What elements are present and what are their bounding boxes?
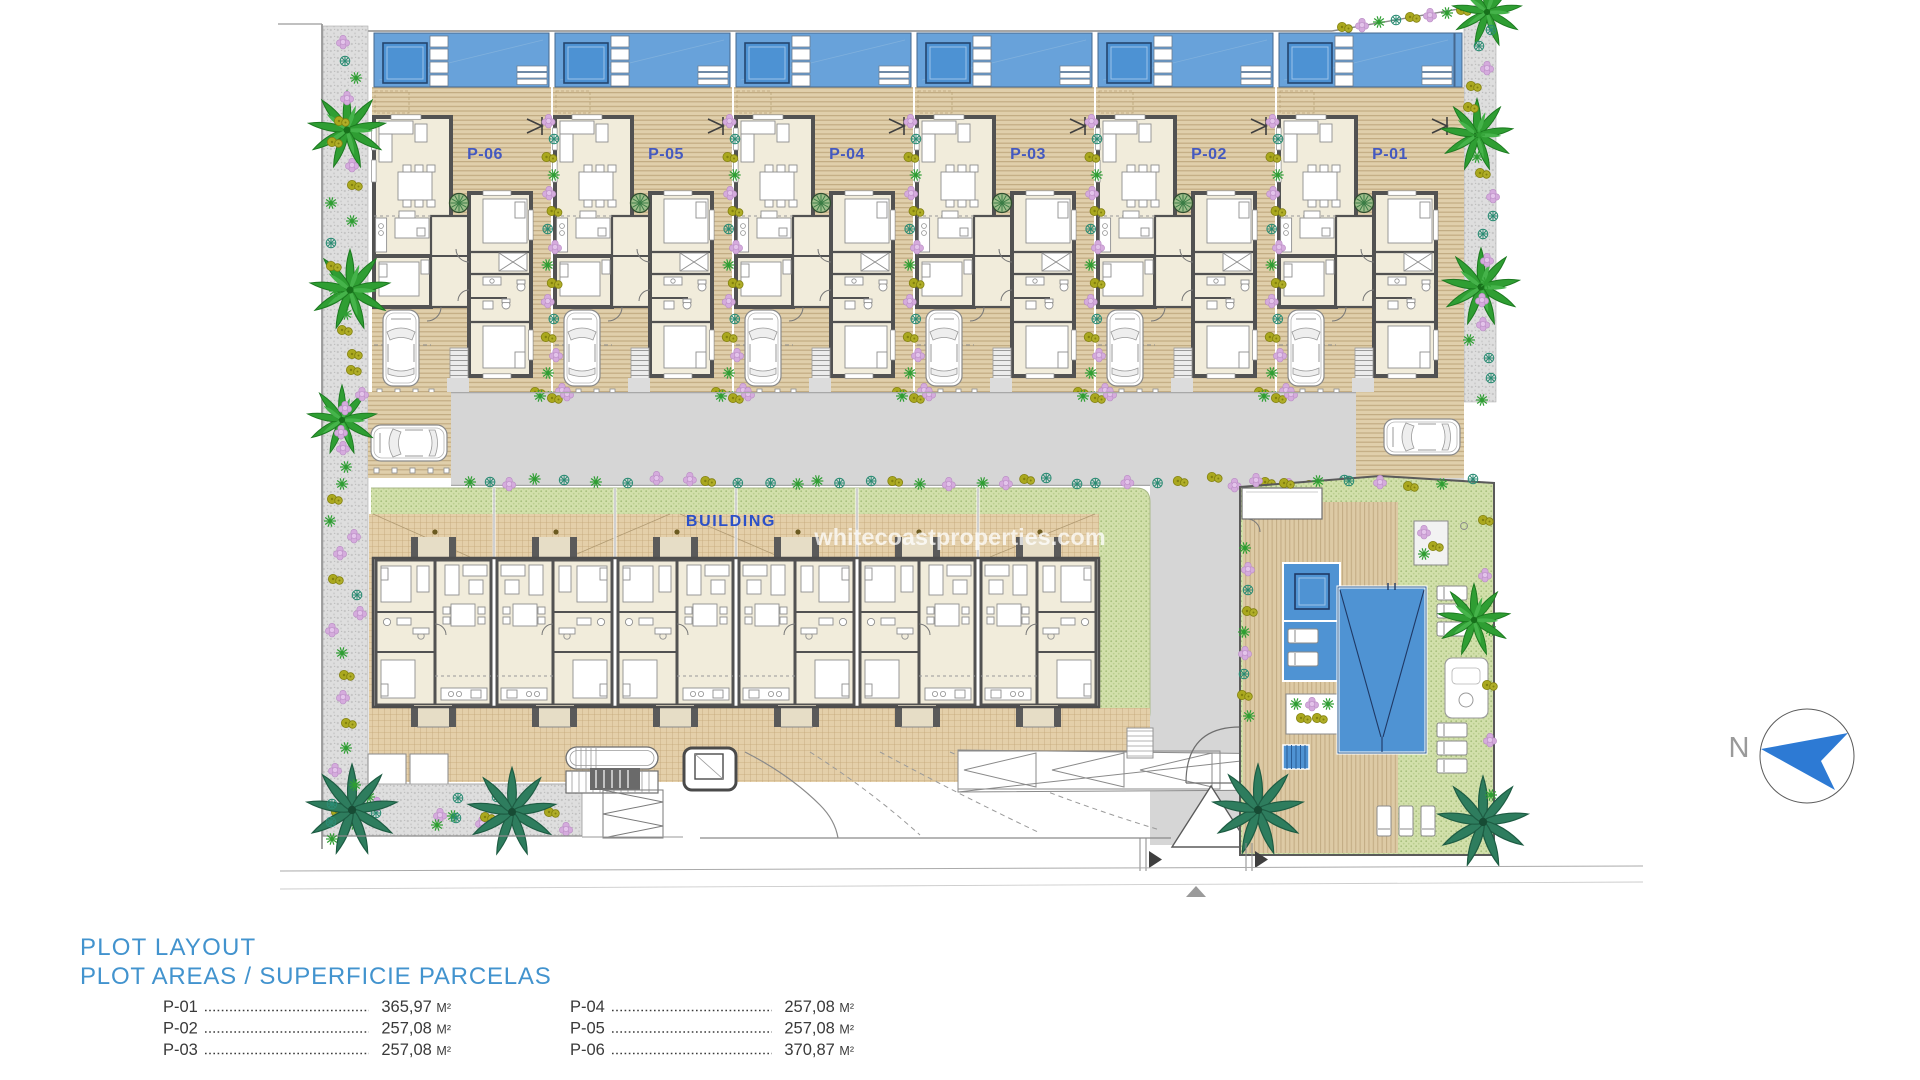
- svg-text:N: N: [1729, 732, 1750, 764]
- svg-text:whitecoastproperties.com: whitecoastproperties.com: [813, 524, 1105, 550]
- svg-text:P-06: P-06: [467, 146, 503, 163]
- svg-text:257,08 M²: 257,08 M²: [784, 998, 854, 1016]
- svg-text:P-05: P-05: [570, 1020, 605, 1038]
- svg-text:P-01: P-01: [1372, 146, 1408, 163]
- svg-text:P-01: P-01: [163, 998, 198, 1016]
- svg-text:370,87 M²: 370,87 M²: [784, 1041, 854, 1059]
- svg-text:P-02: P-02: [1191, 146, 1227, 163]
- svg-text:P-05: P-05: [648, 146, 684, 163]
- svg-text:P-04: P-04: [829, 146, 865, 163]
- svg-text:257,08 M²: 257,08 M²: [784, 1020, 854, 1038]
- svg-text:365,97 M²: 365,97 M²: [381, 998, 451, 1016]
- svg-text:P-03: P-03: [1010, 146, 1046, 163]
- svg-text:P-03: P-03: [163, 1041, 198, 1059]
- svg-text:P-02: P-02: [163, 1020, 198, 1038]
- svg-text:P-06: P-06: [570, 1041, 605, 1059]
- svg-text:BUILDING: BUILDING: [686, 513, 776, 530]
- svg-text:257,08 M²: 257,08 M²: [381, 1041, 451, 1059]
- svg-text:257,08 M²: 257,08 M²: [381, 1020, 451, 1038]
- svg-text:P-04: P-04: [570, 998, 605, 1016]
- svg-text:PLOT AREAS / SUPERFICIE PARCEL: PLOT AREAS / SUPERFICIE PARCELAS: [80, 963, 552, 990]
- svg-text:PLOT LAYOUT: PLOT LAYOUT: [80, 934, 256, 961]
